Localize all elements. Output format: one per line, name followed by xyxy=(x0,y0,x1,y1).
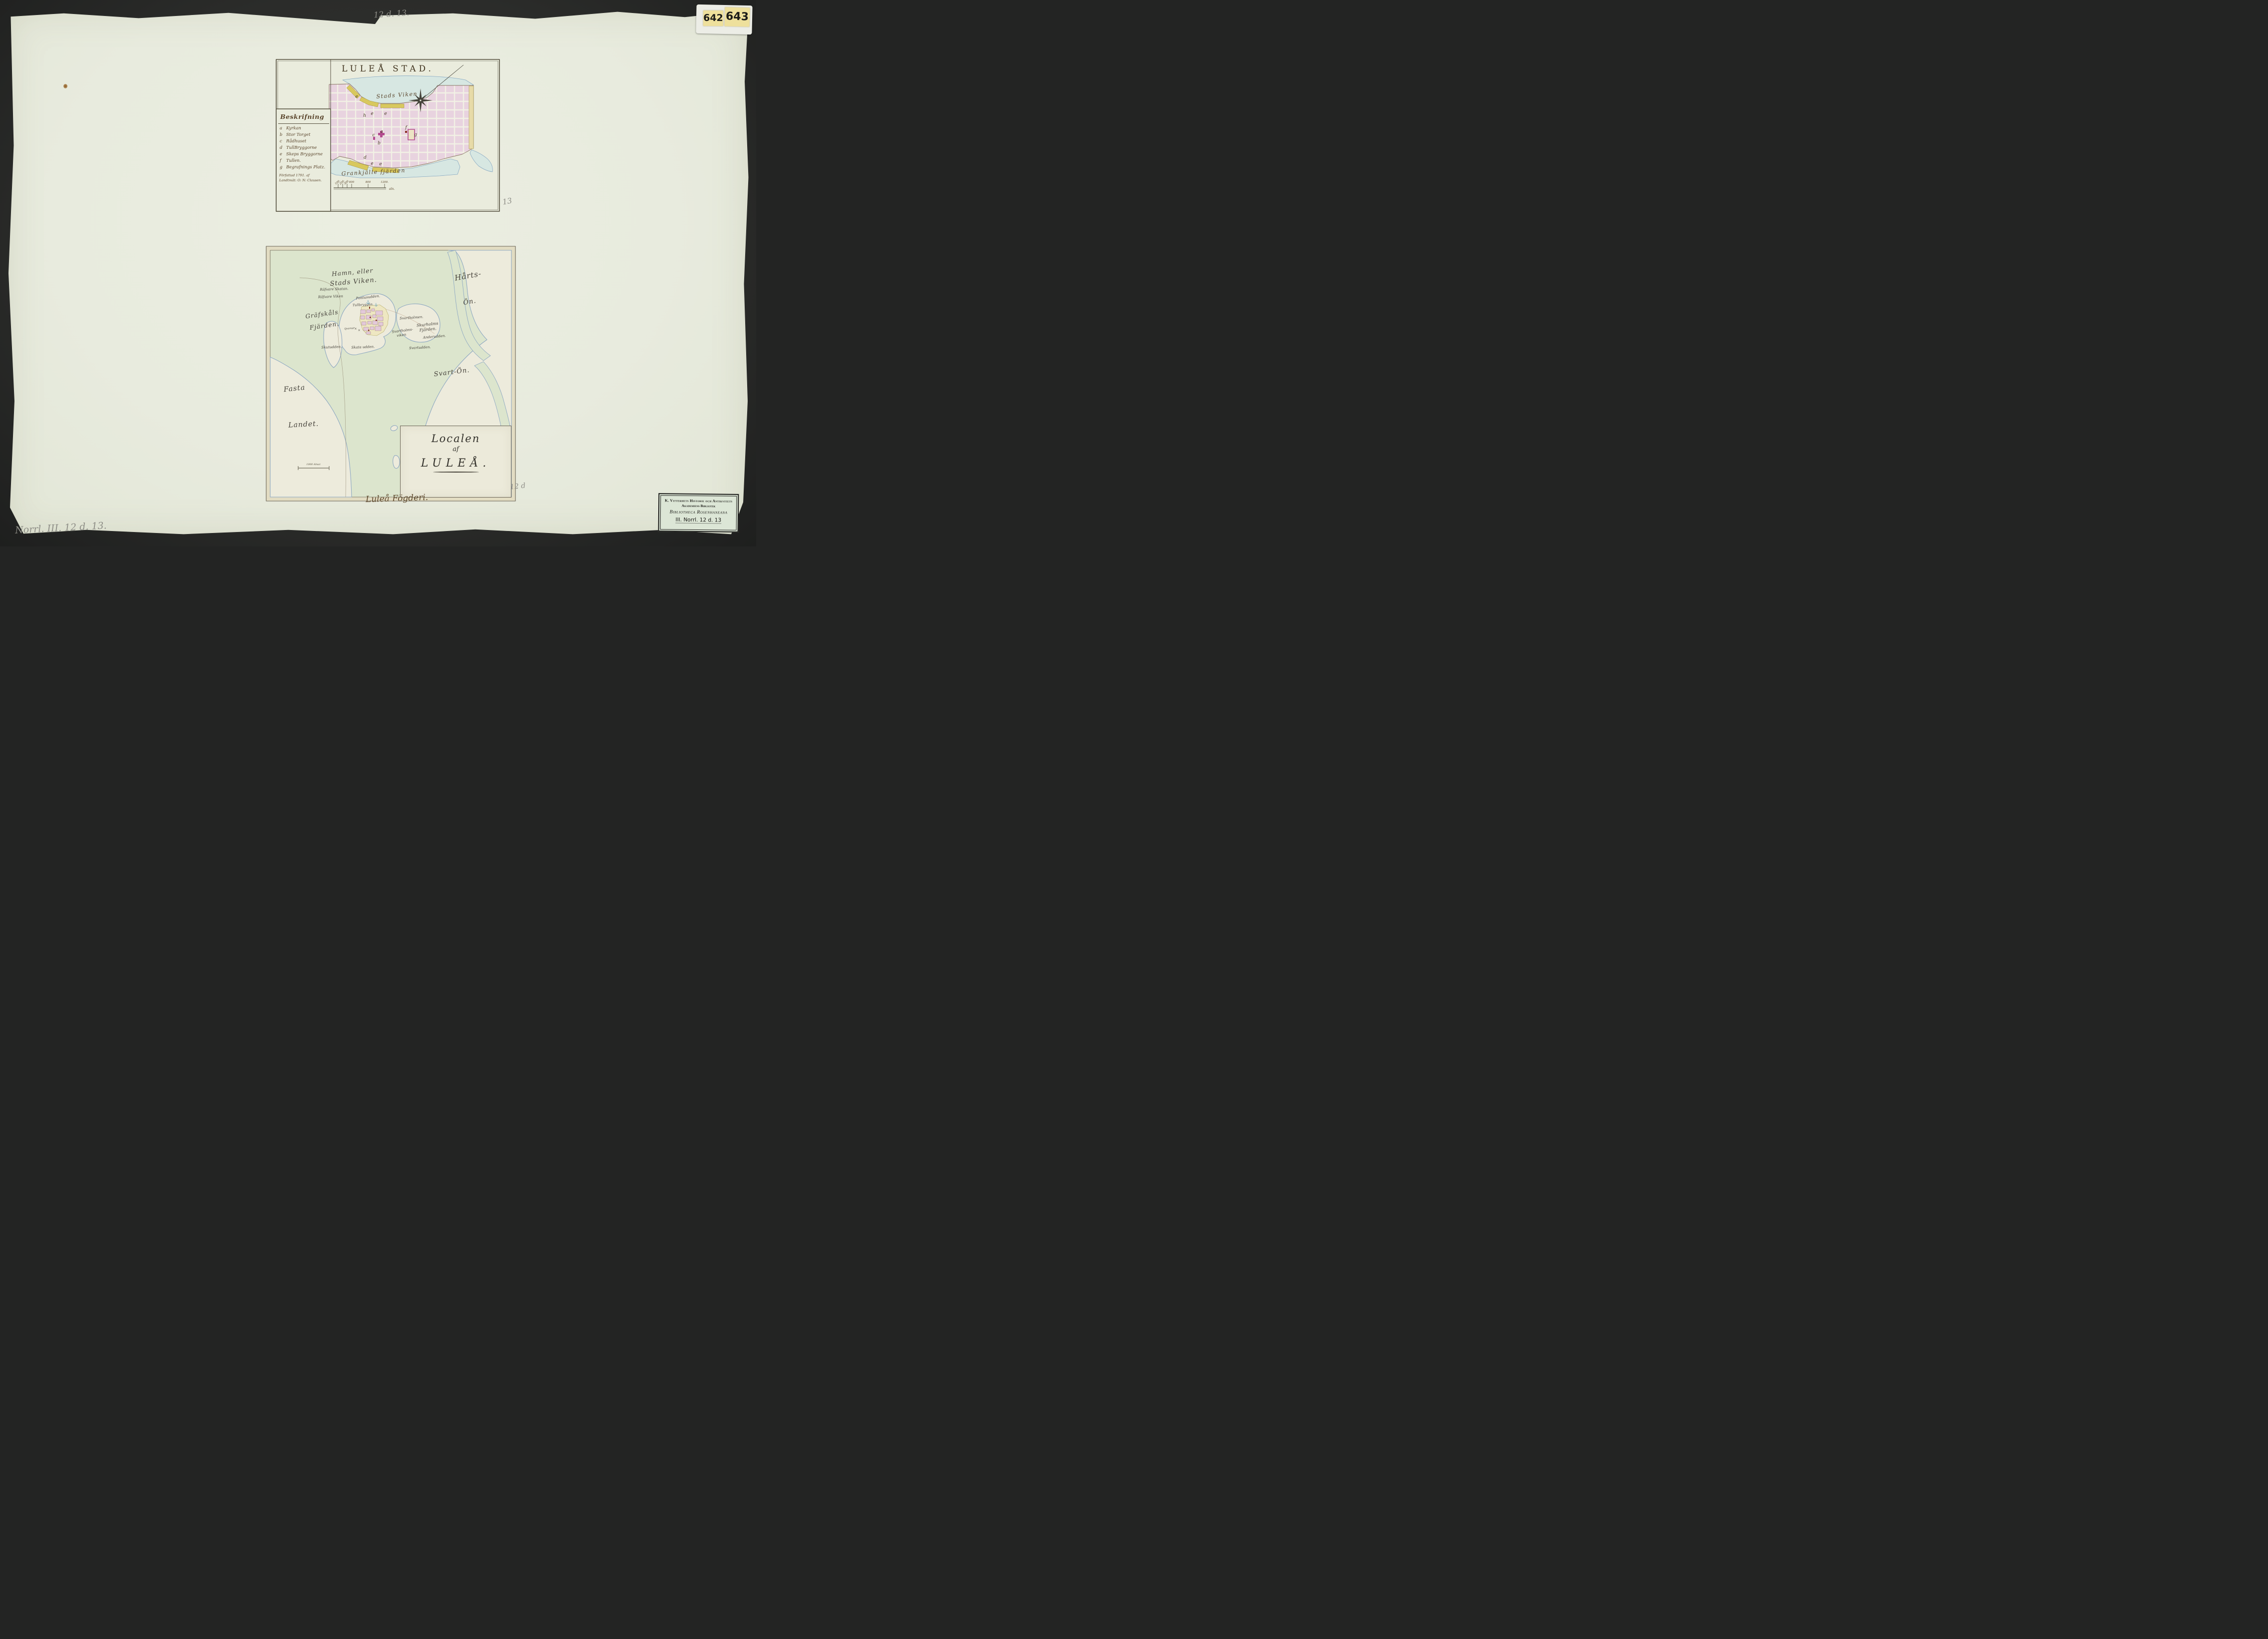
map2-place-label: Skutudden. xyxy=(321,345,342,349)
cartouche-line1: Localen xyxy=(401,433,511,445)
map2-place-label: Skata udden. xyxy=(351,345,375,350)
bookplate-line2: Akademiens Bibliotek xyxy=(661,504,736,509)
inventory-tab-642: 642 xyxy=(703,10,723,26)
legend-entry: dTullBryggorne xyxy=(278,144,329,151)
map1-marker-letter: e xyxy=(371,161,373,166)
anchor-icon: ⚓ xyxy=(374,303,378,307)
cartouche-line3: LULEÅ. xyxy=(401,457,511,470)
legend-heading: Beskrifning xyxy=(278,112,329,124)
scanned-map-sheet: 100.200.300.4008001200.aln. eheedeecabfg… xyxy=(0,0,756,546)
legend-entry: aKyrkan xyxy=(278,125,329,131)
map1-marker-letter: c xyxy=(372,133,375,138)
map1-number-pencil: 13 xyxy=(502,196,513,206)
map1-marker-letter: a xyxy=(380,129,383,134)
map1-legend: Beskrifning aKyrkanbStor TorgetcRådhuset… xyxy=(278,112,329,183)
map1-burial-ground xyxy=(408,129,415,140)
legend-entry: fTullen. xyxy=(278,157,329,164)
bookplate-shelfmark: III. Norrl. 12 d. 13 xyxy=(675,517,721,524)
cartouche-underline xyxy=(433,472,479,473)
map2-small-island xyxy=(393,456,400,469)
map1-marker-letter: g xyxy=(414,132,417,137)
legend-entry: bStor Torget xyxy=(278,131,329,138)
inventory-tab-643: 643 xyxy=(725,7,750,26)
windmill-mark-icon: × xyxy=(358,329,360,332)
bookplate-line3: Bibliotheca Rosenhaneana xyxy=(661,509,736,516)
map1-scale-tick-label: 400 xyxy=(349,181,355,184)
library-bookplate: K. Vitterhets Historie och Antikvitets A… xyxy=(658,493,739,533)
map2-scale-label: 1000 Alnar. xyxy=(306,463,321,466)
map2-number-pencil: 12 d xyxy=(509,482,526,491)
map2-cartouche: Localen af LULEÅ. xyxy=(400,426,511,498)
map1-marker-letter: e xyxy=(379,162,382,167)
legend-entry: cRådhuset xyxy=(278,138,329,144)
legend-entry: gBegrafnings Platz. xyxy=(278,164,329,170)
legend-credit-line2: Landtmät: O: N: Clausen. xyxy=(279,178,329,183)
windmill-mark-icon: × xyxy=(354,327,357,331)
map1-marker-letter: e xyxy=(371,111,373,116)
map-artwork: 100.200.300.4008001200.aln. eheedeecabfg… xyxy=(0,0,756,546)
legend-entry: eSkeps Bryggorne xyxy=(278,151,329,157)
map1-marker-letter: h xyxy=(363,113,366,118)
cartouche-line2: af xyxy=(401,446,511,453)
map1-marker-letter: b xyxy=(378,141,381,146)
map1-scale-tick-label: 1200. xyxy=(381,181,389,184)
map1-marker-letter: e xyxy=(384,111,387,116)
bookplate-line1: K. Vitterhets Historie och Antikvitets xyxy=(661,498,736,504)
legend-credit-line1: Författad 1791. af xyxy=(279,173,329,178)
anchor-icon: ⚓ xyxy=(366,300,371,304)
map2-place-label: Landet. xyxy=(288,420,319,429)
legend-entries: aKyrkanbStor TorgetcRådhusetdTullBryggor… xyxy=(278,125,329,170)
map1-title: LULEÅ STAD. xyxy=(276,64,499,74)
map1-scale-tick-label: 800 xyxy=(366,181,371,184)
map1-marker-letter: d xyxy=(364,155,367,160)
map1-marker-letter: e xyxy=(355,94,358,99)
map1-tull xyxy=(405,131,407,133)
map1-scale-unit: aln. xyxy=(389,187,395,191)
